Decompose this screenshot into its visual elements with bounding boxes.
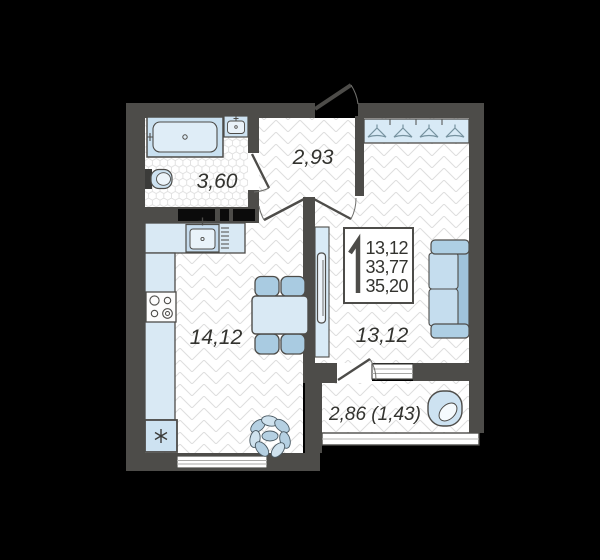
wall-top-left <box>126 103 315 118</box>
wardrobe <box>364 119 469 143</box>
balcony-door-threshold <box>337 363 372 383</box>
kitchen-area-label: 14,12 <box>190 326 243 349</box>
bathroom-area-label: 3,60 <box>197 170 238 193</box>
wall-balcony-junction <box>303 363 337 383</box>
chair <box>255 277 279 297</box>
table-top <box>252 296 308 334</box>
stove-burners-icon <box>146 292 176 322</box>
area-no-balcony-value: 33,77 <box>365 257 408 277</box>
bathroom-sink-icon <box>224 116 248 137</box>
chair <box>281 334 305 354</box>
area-living-value: 13,12 <box>365 238 408 258</box>
vent-shaft <box>178 209 215 221</box>
sofa-icon <box>429 240 469 338</box>
tv-icon <box>318 253 326 323</box>
vent-shaft <box>220 209 229 221</box>
armchair-icon <box>428 391 462 426</box>
chair <box>281 277 305 297</box>
living-room-area-label: 13,12 <box>356 324 409 347</box>
balcony-glazing <box>322 433 479 445</box>
balcony-window <box>372 364 413 379</box>
kitchen-window <box>177 456 267 468</box>
floor-plan: 13,12 33,77 35,20 3,60 2,93 14,12 13,12 … <box>0 0 600 560</box>
area-total-value: 35,20 <box>365 276 408 296</box>
wall-right <box>469 103 484 433</box>
tv-unit <box>315 227 329 357</box>
toilet-icon <box>145 169 172 189</box>
kitchen-counter-left <box>145 253 175 420</box>
wall-living-bottom <box>413 363 484 381</box>
bathtub-icon <box>147 117 223 157</box>
floor-plan-canvas: 13,12 33,77 35,20 3,60 2,93 14,12 13,12 … <box>0 0 600 560</box>
wall-hallway-right <box>355 116 364 196</box>
unit-info-box: 13,12 33,77 35,20 <box>344 228 413 303</box>
wall-kitchen-balcony <box>305 383 322 453</box>
hallway-area-label: 2,93 <box>292 146 334 169</box>
vent-shaft <box>233 209 255 221</box>
balcony-area-label: 2,86 (1,43) <box>328 404 421 425</box>
fridge <box>145 420 177 452</box>
chair <box>255 334 279 354</box>
wall-left <box>126 103 145 471</box>
wall-bathroom-right-top <box>248 116 259 153</box>
wall-bathroom-right-bottom <box>248 190 259 207</box>
wall-top-right <box>358 103 484 118</box>
